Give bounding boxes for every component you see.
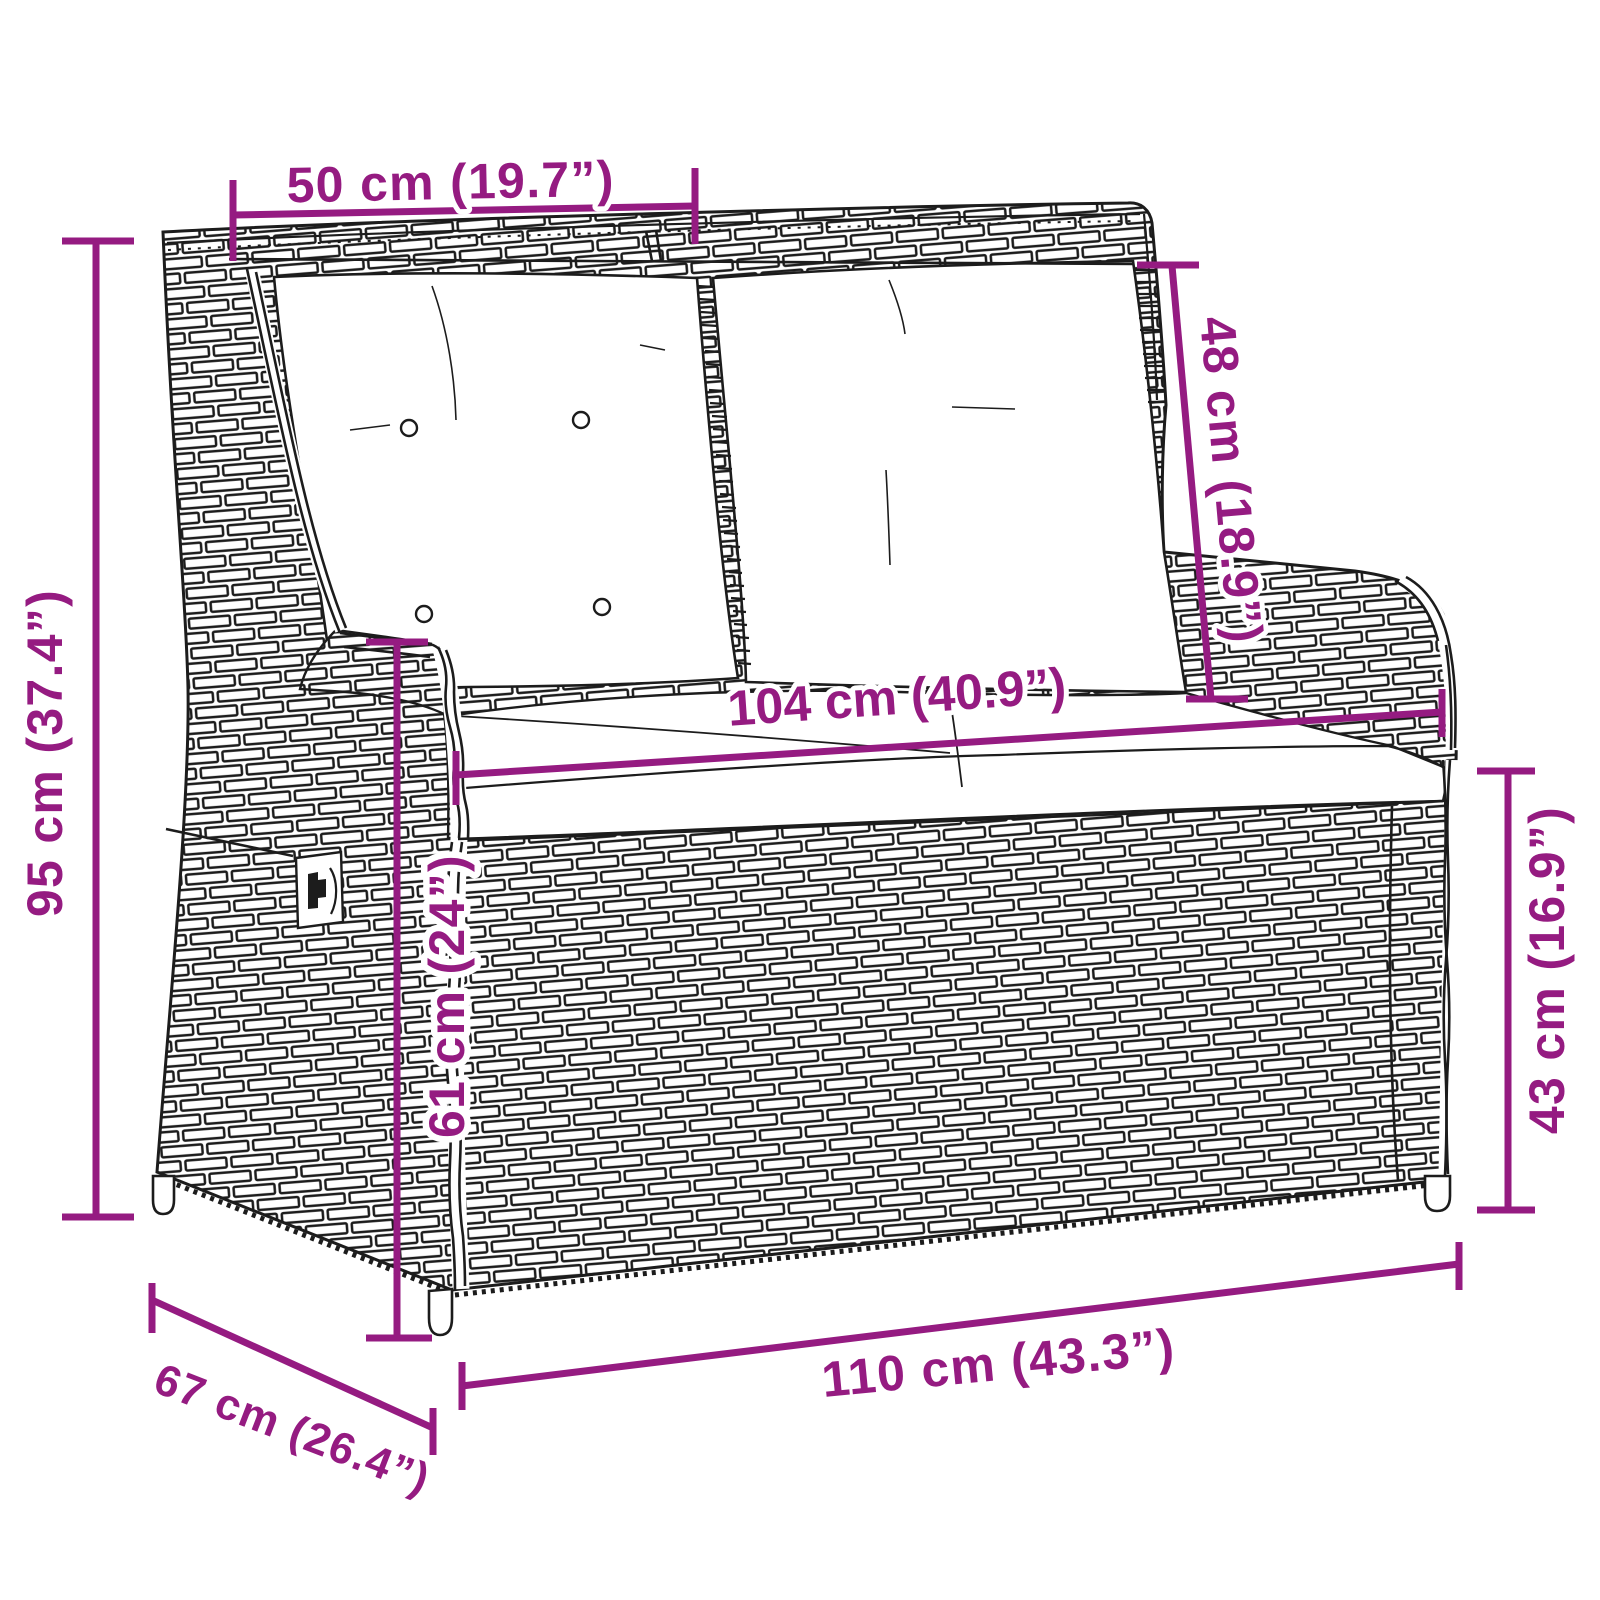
svg-text:95 cm (37.4”): 95 cm (37.4”) bbox=[17, 589, 73, 917]
svg-text:61 cm (24”): 61 cm (24”) bbox=[419, 854, 475, 1138]
svg-text:50 cm (19.7”): 50 cm (19.7”) bbox=[286, 151, 615, 214]
svg-text:43 cm (16.9”): 43 cm (16.9”) bbox=[1519, 806, 1575, 1134]
